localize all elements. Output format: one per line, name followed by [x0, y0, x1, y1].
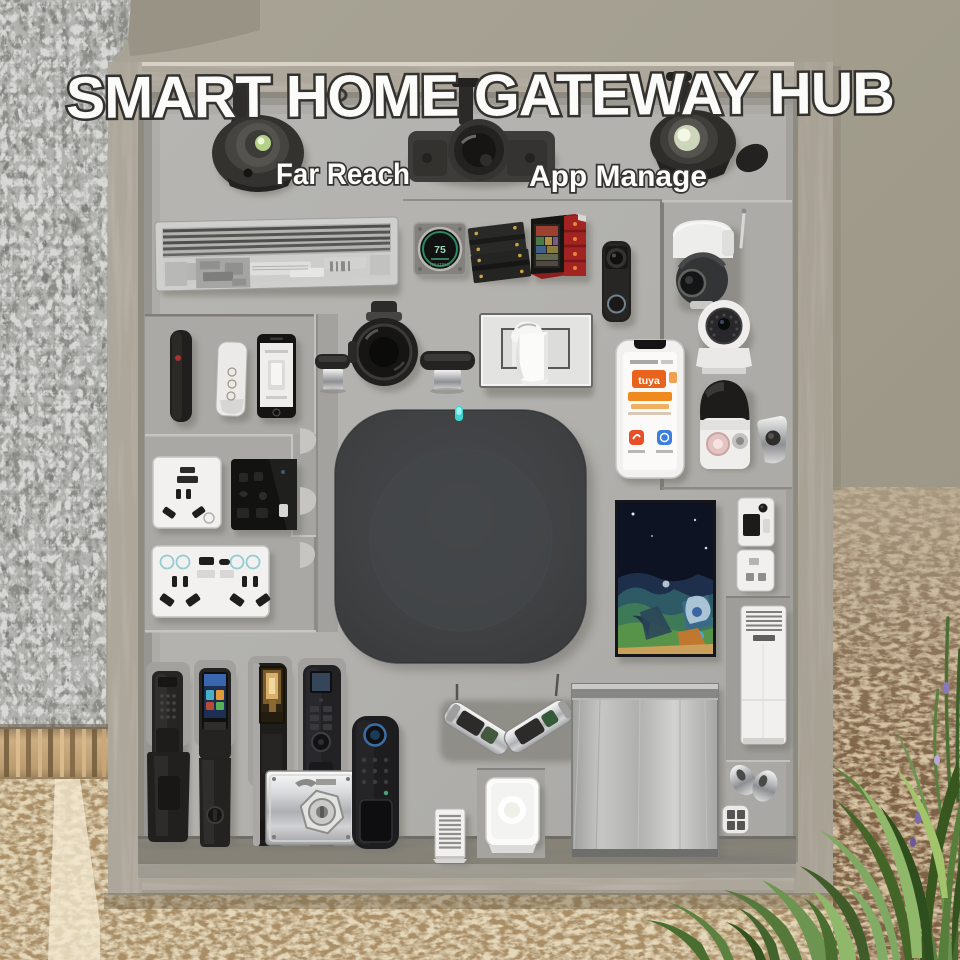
svg-text:75: 75 — [434, 244, 446, 256]
svg-text:SMART HOME GATEWAY HUB: SMART HOME GATEWAY HUB — [66, 60, 894, 131]
svg-text:HEATING: HEATING — [430, 262, 450, 267]
svg-text:App Manage: App Manage — [529, 160, 707, 193]
svg-text:Far Reach: Far Reach — [276, 158, 410, 191]
svg-text:tuya: tuya — [638, 375, 660, 387]
